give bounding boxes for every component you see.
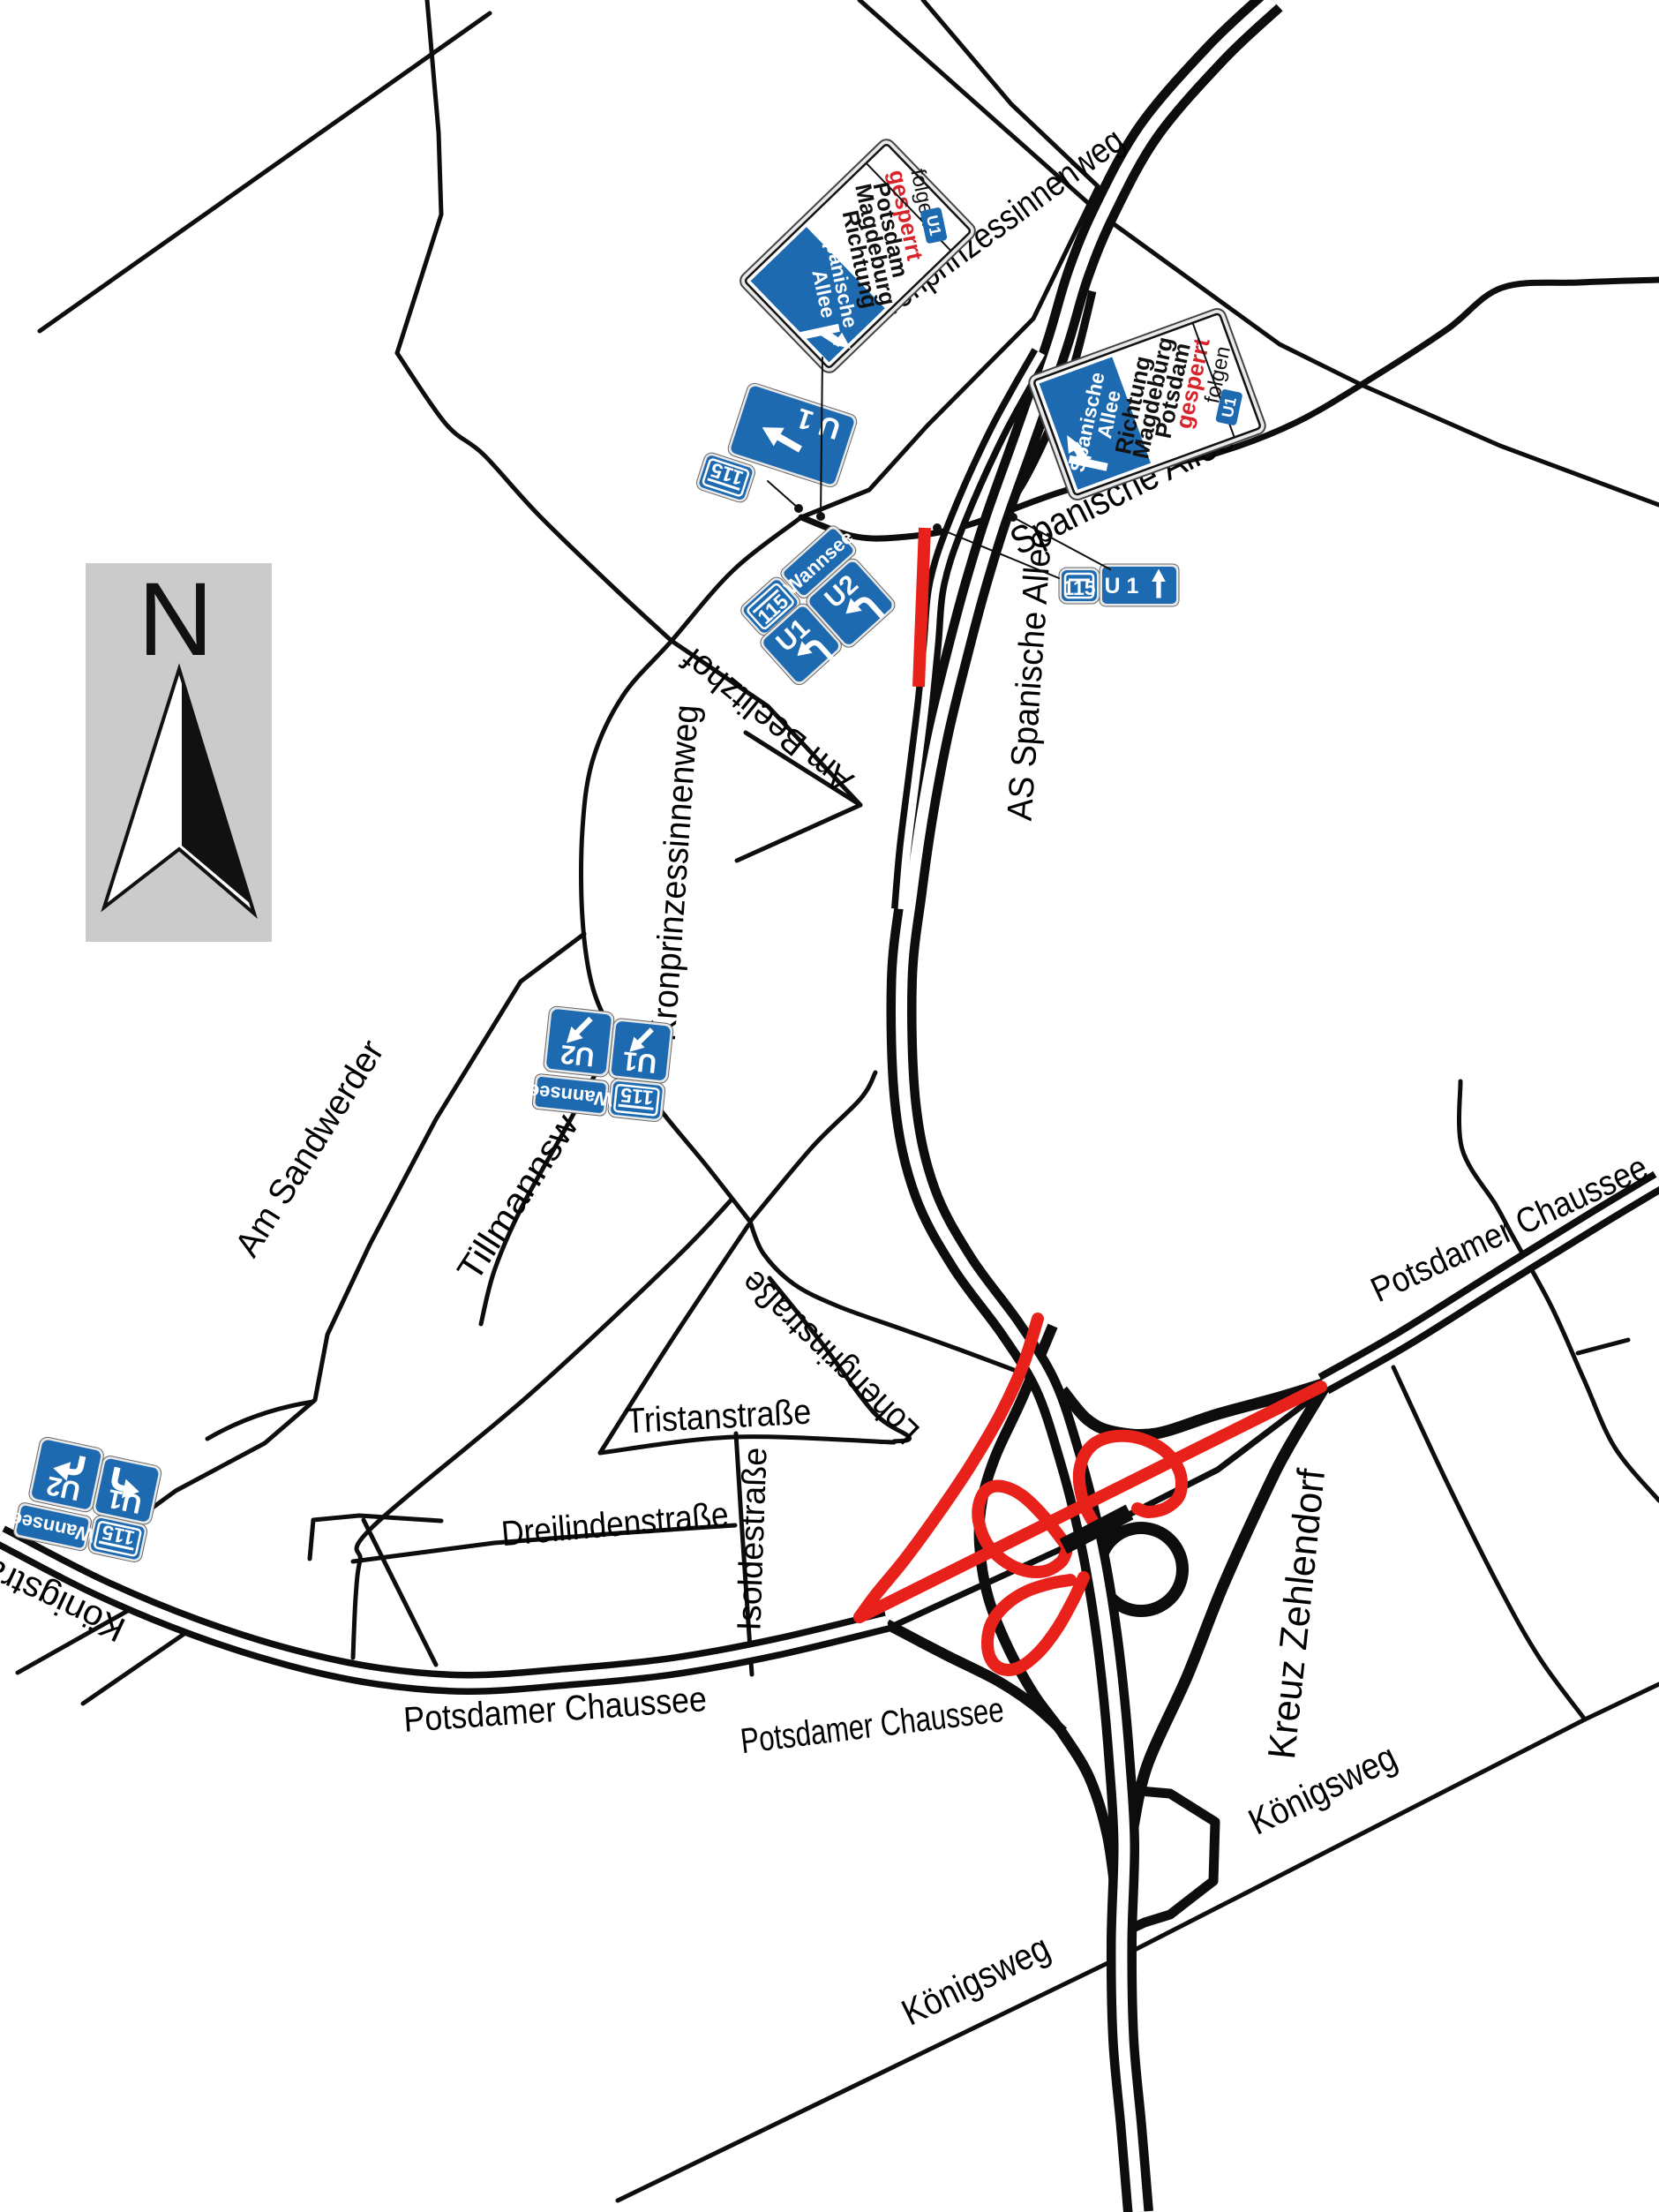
svg-text:115: 115: [1062, 576, 1095, 599]
svg-text:N: N: [138, 561, 213, 678]
svg-text:115: 115: [619, 1083, 655, 1110]
svg-text:Isoldestraße: Isoldestraße: [731, 1447, 774, 1631]
svg-text:U2: U2: [559, 1039, 597, 1072]
svg-text:U 1: U 1: [1105, 574, 1139, 598]
svg-text:U1: U1: [621, 1045, 658, 1078]
